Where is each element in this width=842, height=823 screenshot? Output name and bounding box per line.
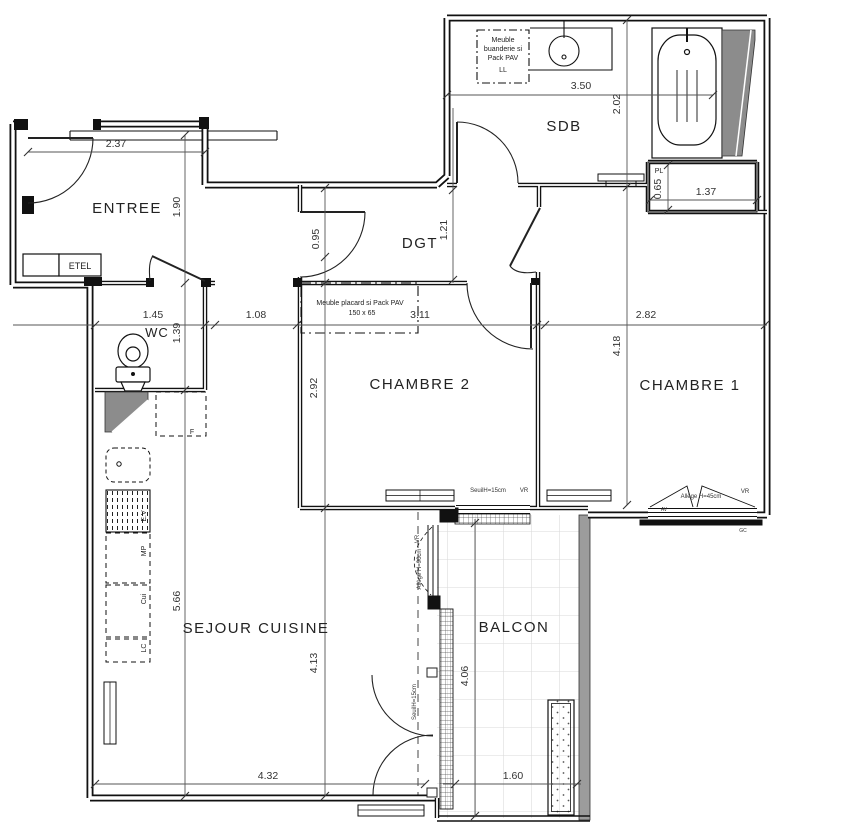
seuil-chambre2-label: SeuilH=15cm bbox=[470, 488, 506, 494]
sejour-glazing-strip bbox=[440, 609, 453, 809]
dim-wc-depth: 1.39 bbox=[171, 323, 183, 344]
cui-label: Cui bbox=[141, 593, 148, 604]
dim-chambre2-width: 3.11 bbox=[410, 309, 430, 321]
fridge-box bbox=[156, 392, 206, 436]
duct-shaft-wc bbox=[105, 392, 148, 432]
mp-box bbox=[106, 533, 150, 583]
room-label-chambre1: CHAMBRE 1 bbox=[639, 377, 740, 394]
allege90-label: Allège H=90cm bbox=[417, 549, 423, 590]
dim-balcon-depth: 4.06 bbox=[459, 666, 471, 687]
balcony-parapet-right bbox=[579, 515, 590, 820]
dimension-ticks bbox=[24, 16, 769, 820]
dim-chambre1-width: 2.82 bbox=[636, 309, 657, 321]
dim-sejour-depth: 4.13 bbox=[308, 653, 320, 674]
room-label-entree: ENTREE bbox=[92, 200, 162, 217]
bathtub bbox=[652, 28, 722, 158]
vr-sejour-label: VR bbox=[415, 534, 421, 543]
dim-pl-depth: 0.65 bbox=[652, 179, 664, 200]
room-label-dgt: DGT bbox=[402, 235, 438, 252]
buanderie-line4: LL bbox=[499, 67, 507, 74]
dim-sejour-height: 5.66 bbox=[171, 591, 183, 612]
pl-label: PL bbox=[655, 168, 664, 175]
room-label-balcon: BALCON bbox=[479, 619, 550, 636]
dim-dgt-right: 1.21 bbox=[438, 220, 450, 241]
wc-door bbox=[149, 256, 205, 281]
placard-label-line1: Meuble placard si Pack PAV bbox=[316, 300, 404, 307]
cooker-box bbox=[106, 585, 150, 637]
placard-label-line2: 150 x 65 bbox=[349, 310, 376, 317]
seuil-sejour-label: SeuilH=15cm bbox=[412, 684, 418, 720]
kitchen-sink bbox=[106, 448, 150, 482]
dim-sdb-depth: 2.02 bbox=[611, 94, 623, 115]
dim-pl-width: 1.37 bbox=[696, 186, 717, 198]
entree-window-band bbox=[70, 131, 277, 140]
allege45-label: Allège H=45cm bbox=[681, 494, 722, 500]
chambre2-door bbox=[467, 283, 533, 349]
room-label-wc: WC bbox=[145, 325, 169, 340]
balcony-bench bbox=[358, 805, 424, 816]
av-label: AV bbox=[661, 507, 668, 513]
dim-chambre1-depth: 4.18 bbox=[611, 336, 623, 357]
dim-entree-depth: 1.90 bbox=[171, 197, 183, 218]
sdb-door bbox=[457, 122, 518, 183]
labels: ENTREE SDB DGT WC CHAMBRE 2 CHAMBRE 1 SE… bbox=[69, 37, 750, 782]
balcony-planter bbox=[548, 700, 574, 815]
buanderie-line1: Meuble bbox=[492, 37, 515, 44]
room-label-sejour: SEJOUR CUISINE bbox=[183, 620, 330, 637]
mp-label: MP bbox=[141, 545, 148, 556]
buanderie-line2: buanderie si bbox=[484, 46, 523, 53]
duct-shaft-sdb bbox=[722, 30, 755, 156]
floor-plan: ENTREE SDB DGT WC CHAMBRE 2 CHAMBRE 1 SE… bbox=[0, 0, 842, 823]
room-label-sdb: SDB bbox=[546, 118, 581, 135]
washbasin bbox=[530, 20, 612, 70]
dim-chambre2-depth: 2.92 bbox=[308, 378, 320, 399]
dim-passage: 1.08 bbox=[246, 309, 267, 321]
dim-sejour-width: 4.32 bbox=[258, 770, 279, 782]
entry-door bbox=[28, 138, 93, 203]
vr-chambre1-label: VR bbox=[741, 489, 750, 495]
dim-balcon-width: 1.60 bbox=[503, 770, 524, 782]
balcony-french-doors bbox=[372, 668, 437, 797]
balcony bbox=[358, 512, 590, 821]
dim-dgt-left: 0.95 bbox=[310, 229, 322, 250]
room-label-chambre2: CHAMBRE 2 bbox=[369, 376, 470, 393]
dim-sdb-width: 3.50 bbox=[571, 80, 592, 92]
chambre1-door bbox=[510, 208, 540, 273]
lc-label: LC bbox=[141, 644, 148, 653]
vr-chambre2-label: VR bbox=[520, 488, 529, 494]
dim-wc-width: 1.45 bbox=[143, 309, 164, 321]
buanderie-line3: Pack PAV bbox=[488, 55, 519, 62]
dim-entree-width: 2.37 bbox=[106, 138, 127, 150]
toilet bbox=[116, 334, 150, 391]
gc-label: GC bbox=[739, 528, 747, 534]
placard-box bbox=[301, 283, 418, 333]
ev-label: E.V bbox=[141, 510, 148, 522]
fridge-label: F bbox=[190, 429, 194, 436]
etel-label: ETEL bbox=[69, 261, 92, 271]
